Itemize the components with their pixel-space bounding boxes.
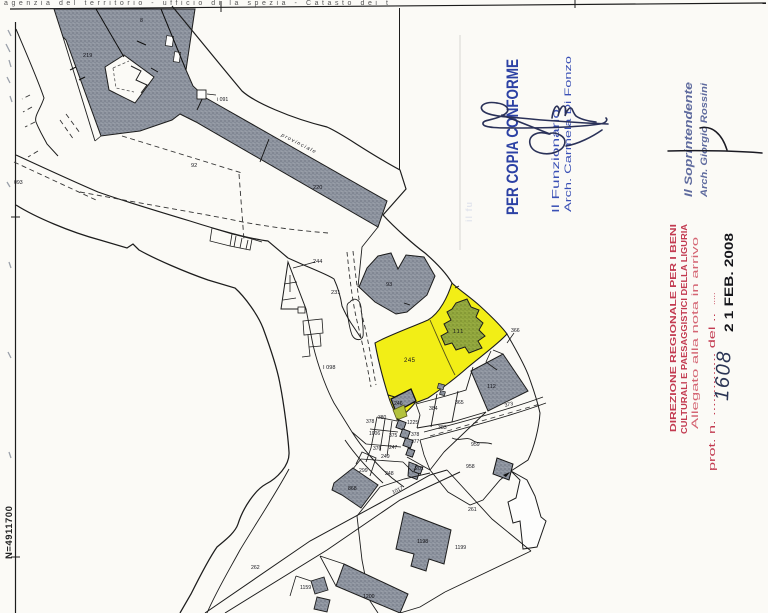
svg-text:I 098: I 098 <box>323 365 335 371</box>
svg-text:245: 245 <box>404 358 416 364</box>
svg-text:1199: 1199 <box>455 545 466 551</box>
svg-text:N=4911700: N=4911700 <box>4 506 15 559</box>
svg-text:247: 247 <box>389 445 398 451</box>
svg-text:Allegato alla nota in arrivo: Allegato alla nota in arrivo <box>690 237 701 429</box>
svg-text:CULTURALI E PAESAGGISTICI DELL: CULTURALI E PAESAGGISTICI DELLA LIGURIA <box>679 224 689 434</box>
svg-text:PER COPIA CONFORME: PER COPIA CONFORME <box>503 59 522 215</box>
svg-text:366: 366 <box>511 328 520 334</box>
svg-text:DIREZIONE REGIONALE PER I BENI: DIREZIONE REGIONALE PER I BENI <box>668 224 678 432</box>
svg-text:384: 384 <box>429 406 438 412</box>
svg-text:244: 244 <box>313 259 322 265</box>
svg-text:378: 378 <box>366 419 375 425</box>
svg-text:Arch. Carmela Di Fonzo: Arch. Carmela Di Fonzo <box>563 56 573 212</box>
svg-text:8: 8 <box>140 18 143 24</box>
svg-text:2 1 FEB. 2008: 2 1 FEB. 2008 <box>724 232 736 332</box>
svg-text:1006: 1006 <box>369 431 380 437</box>
svg-text:1198: 1198 <box>417 539 428 545</box>
svg-text:220: 220 <box>313 185 322 191</box>
svg-text:219: 219 <box>83 53 92 59</box>
svg-text:375: 375 <box>389 433 398 439</box>
svg-text:868: 868 <box>348 486 357 492</box>
svg-text:959: 959 <box>471 442 480 448</box>
svg-text:1608: 1608 <box>711 350 736 402</box>
svg-text:i 091: i 091 <box>217 97 228 103</box>
svg-text:383: 383 <box>438 425 447 431</box>
svg-text:93: 93 <box>386 282 392 288</box>
svg-text:1159: 1159 <box>300 585 311 591</box>
svg-text:Il Funzionario: Il Funzionario <box>550 109 562 213</box>
svg-text:.....: ..... <box>707 292 717 305</box>
svg-text:378: 378 <box>411 432 420 438</box>
svg-text:958: 958 <box>466 464 475 470</box>
svg-text:380: 380 <box>378 415 387 421</box>
svg-text:299: 299 <box>359 468 368 474</box>
svg-text:112: 112 <box>487 384 496 390</box>
svg-text:261: 261 <box>468 507 477 513</box>
svg-text:111: 111 <box>453 329 464 335</box>
svg-text:Il Soprintendente: Il Soprintendente <box>683 82 695 197</box>
svg-text:Arch. Giorgio Rossini: Arch. Giorgio Rossini <box>699 82 709 198</box>
svg-text:262: 262 <box>251 565 260 571</box>
svg-text:249: 249 <box>381 454 390 460</box>
svg-text:248: 248 <box>385 471 394 477</box>
svg-text:1200: 1200 <box>363 594 375 600</box>
svg-text:201: 201 <box>415 466 424 472</box>
svg-text:231: 231 <box>331 290 340 296</box>
svg-text:376: 376 <box>373 446 382 452</box>
svg-text:1225: 1225 <box>407 420 418 426</box>
svg-text:il fu: il fu <box>464 201 474 222</box>
svg-text:093: 093 <box>14 180 23 186</box>
svg-text:92: 92 <box>191 163 197 169</box>
svg-text:365: 365 <box>455 400 464 406</box>
svg-text:377: 377 <box>411 439 420 445</box>
